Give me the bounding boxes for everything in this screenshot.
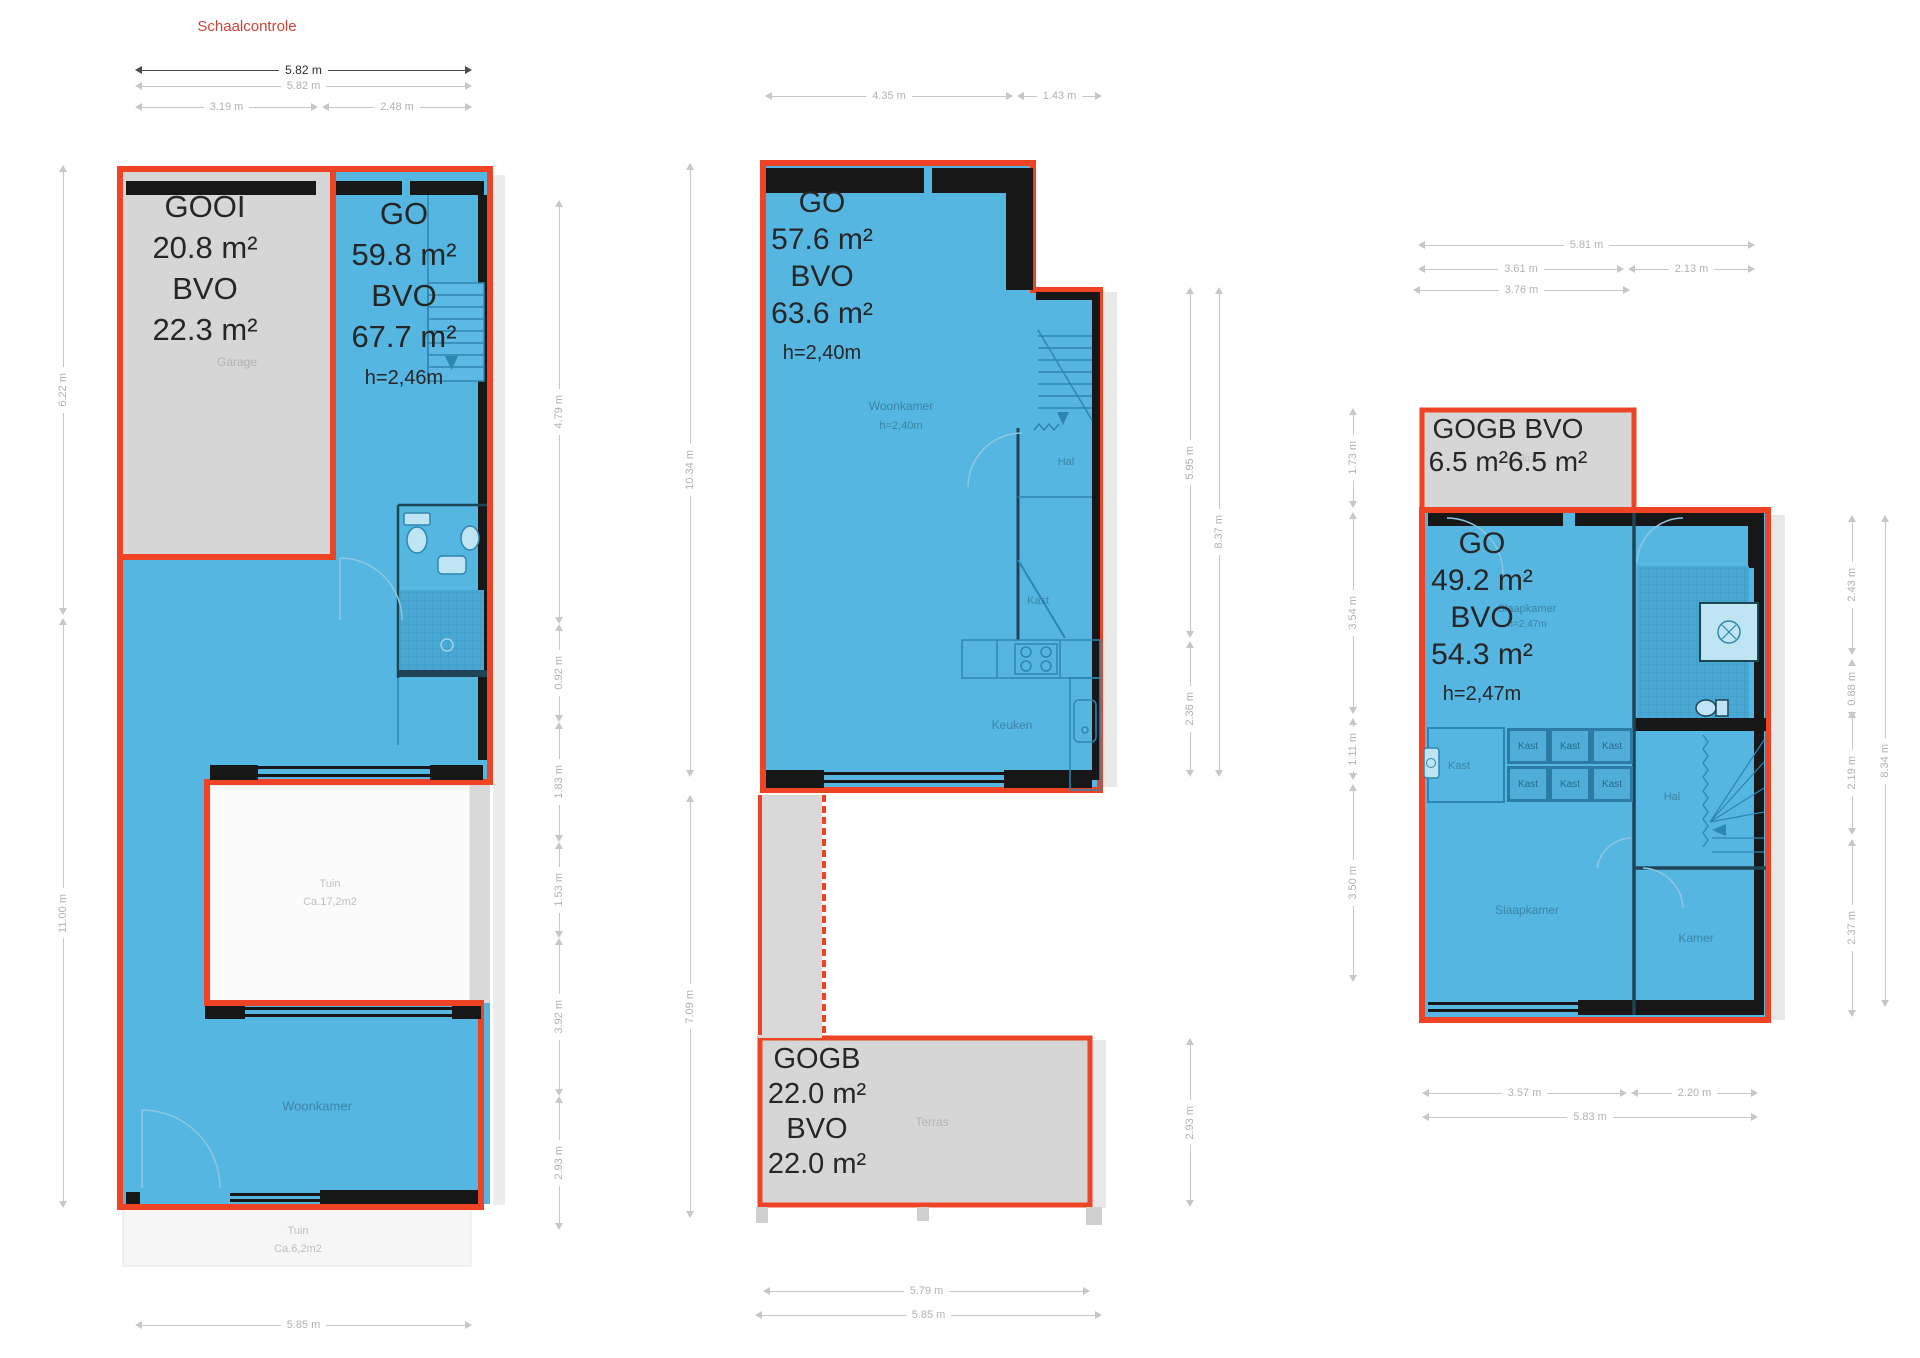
plan3-dim-left-3: 1.11 m [1346,718,1360,780]
room-label-hal3: Hal [1664,791,1681,803]
plan3-dim-bottom-right: 2.20 m [1631,1086,1758,1100]
dim-line [142,1325,281,1326]
kast-cell: Kast [1549,728,1591,764]
dim-line [1353,415,1354,435]
dim-line [559,913,560,931]
dim-label: 2.93 m [553,1140,565,1186]
plan3-dim-right-outer: 8.34 m [1878,515,1892,1007]
dim-line [762,1315,906,1316]
dim-label: 5.82 m [281,80,327,92]
room-label-garage: Garage [217,355,257,369]
plan3-gogb-label: GOGB BVO 6.5 m²6.5 m² [1429,412,1588,478]
dim-line [326,86,465,87]
room-label-kast-large: Kast [1448,760,1470,772]
room-label-kamer: Kamer [1678,931,1713,945]
dim-line [1353,906,1354,975]
dim-label: 11.00 m [57,888,69,939]
plan1-dim-top-right: 2.48 m [322,100,472,114]
plan2-dim-right-inner-1: 5.95 m [1183,287,1197,638]
dim-label: 1.83 m [553,759,565,805]
dim-line [328,70,465,71]
plan1-dim-top-total-dark: 5.82 m [135,63,472,77]
gogb-value: 6.5 m² [1429,446,1508,477]
dim-line [1635,269,1669,270]
plan1-dim-bottom: 5.85 m [135,1318,472,1332]
label-line: BVO [351,275,456,316]
dim-line [1544,290,1623,291]
dim-line [1219,294,1220,509]
dim-label: 5.85 m [906,1309,952,1321]
dim-line [559,207,560,389]
dim-label: 2.43 m [1846,562,1858,608]
label-line: GO [771,184,873,221]
dim-label: 3.57 m [1502,1087,1548,1099]
dim-label: 2.13 m [1669,263,1715,275]
label-line: BVO [152,268,257,309]
dim-line [1420,290,1499,291]
plan2-dim-bottom-1: 5.79 m [763,1284,1090,1298]
dim-label: 5.82 m [279,63,328,77]
label-line: BVO [1431,599,1533,636]
kast-cell: Kast [1591,766,1633,802]
dim-line [1717,1093,1751,1094]
room-label-kast2: Kast [1027,595,1049,607]
dim-line [1885,522,1886,738]
dim-line [559,435,560,617]
label-height: h=2,46m [351,363,456,393]
floorplan-page: Schaalcontrole 5.82 m 5.82 m 3.19 m 2.48… [0,0,1920,1358]
dim-label: 5.85 m [281,1319,327,1331]
dim-line [1429,1117,1567,1118]
dim-label: 2.20 m [1672,1087,1718,1099]
dim-line [559,1103,560,1140]
plan3-dim-top-partial: 3.76 m [1413,283,1630,297]
dim-line [559,631,560,650]
dim-line [1082,96,1095,97]
dim-line [1852,951,1853,1010]
plan3-dim-top-left: 3.61 m [1418,262,1624,276]
plan2-dim-bottom-2: 5.85 m [755,1308,1102,1322]
dim-label: 3.19 m [204,101,250,113]
dim-label: 3.50 m [1347,860,1359,906]
label-line: 20.8 m² [152,227,257,268]
dim-label: 3.76 m [1499,284,1545,296]
dim-line [142,107,204,108]
room-label-tuin-lower: Tuin Ca.6,2m2 [274,1222,322,1258]
dim-line [1613,1117,1751,1118]
kast-cell: Kast [1591,728,1633,764]
plan1-go-label: GO 59.8 m² BVO 67.7 m² h=2,46m [351,193,456,393]
label-line: 22.0 m² [768,1147,866,1182]
dim-label: 7.09 m [684,984,696,1030]
plan3-go-label: GO 49.2 m² BVO 54.3 m² h=2,47m [1431,525,1533,709]
dim-line [1852,718,1853,750]
dim-label: 1.53 m [553,867,565,913]
plan1-dim-top-left: 3.19 m [135,100,318,114]
room-label-woonkamer: Woonkamer [282,1099,352,1114]
dim-line [949,1291,1083,1292]
dim-line [559,696,560,715]
dim-line [559,805,560,835]
plan2-dim-left-1: 10.34 m [683,163,697,777]
plan2-outer-shadow [1103,292,1117,787]
dim-label: 3.61 m [1498,263,1544,275]
dim-line [559,1186,560,1223]
dim-line [1190,732,1191,770]
dim-line [1547,1093,1620,1094]
plan3-dim-right-inner-4: 2.37 m [1845,839,1859,1017]
plan1-gooi-label: GOOI 20.8 m² BVO 22.3 m² [152,186,257,350]
dim-line [142,70,279,71]
dim-line [1190,294,1191,440]
dim-line [1219,555,1220,770]
dim-line [63,172,64,367]
plan3-dim-bottom-left: 3.57 m [1422,1086,1627,1100]
plan2-dim-terras: 2.93 m [1183,1038,1197,1207]
dim-label: 5.79 m [904,1285,950,1297]
label-line: 22.0 m² [768,1077,866,1112]
label-line: h=2,40m [869,416,933,436]
plan3-dim-right-inner-2: 0.88 m [1845,659,1859,707]
dim-label: 2.36 m [1184,686,1196,732]
label-line: 6.5 m²6.5 m² [1429,445,1588,478]
dim-line [559,849,560,867]
label-line: 63.6 m² [771,295,873,332]
dim-line [63,938,64,1201]
plan3-dim-bottom-total: 5.83 m [1422,1110,1758,1124]
label-line: GOOI [152,186,257,227]
dim-label: 5.83 m [1567,1111,1613,1123]
dim-label: 0.88 m [1846,666,1858,712]
dim-label: 1.73 m [1347,435,1359,481]
dim-line [690,1029,691,1211]
plan1-dim-top-total: 5.82 m [135,79,472,93]
dim-line [559,945,560,994]
dim-line [1638,1093,1672,1094]
plan3-dim-right-inner-1: 2.43 m [1845,515,1859,655]
plan1-dim-left-1: 6.22 m [56,165,70,615]
dim-line [951,1315,1095,1316]
dim-line [559,729,560,759]
dim-line [1353,481,1354,501]
label-line: 54.3 m² [1431,636,1533,673]
plan3-shapes [1422,410,1785,1020]
dim-line [1353,519,1354,590]
dim-line [1852,796,1853,828]
toilet-tank-icon [404,513,430,525]
dim-label: 3.92 m [553,994,565,1040]
label-line: Woonkamer [869,396,933,416]
room-label-terras: Terras [915,1115,948,1129]
label-line: 59.8 m² [351,234,456,275]
plan1-dim-right-3: 1.83 m [552,722,566,842]
dim-label: 8.34 m [1879,738,1891,784]
dim-line [690,496,691,770]
dim-line [1353,791,1354,860]
plan1-dim-right-4: 1.53 m [552,842,566,938]
dim-label: 3.54 m [1347,590,1359,636]
plan1-dim-right-2: 0.92 m [552,624,566,722]
dim-line [326,1325,465,1326]
plan1-dim-left-2: 11.00 m [56,618,70,1208]
dim-line [1852,608,1853,648]
label-height: h=2,40m [771,338,873,368]
plan3-dim-right-inner-3: 2.19 m [1845,711,1859,835]
dim-label: 2.19 m [1846,750,1858,796]
label-line: Ca.17,2m2 [303,893,357,911]
dim-line [1024,96,1037,97]
plan1-dim-right-6: 2.93 m [552,1096,566,1230]
dim-label: 4.35 m [866,90,912,102]
dim-line [1544,269,1617,270]
room-label-slaapkamer: Slaapkamer [1495,903,1559,917]
plan2-go-label: GO 57.6 m² BVO 63.6 m² h=2,40m [771,184,873,368]
dim-line [1190,648,1191,686]
label-line: 67.7 m² [351,316,456,357]
label-line: GOGB BVO [1429,412,1588,445]
room-label-keuken: Keuken [992,718,1033,732]
dim-line [142,86,281,87]
dim-label: 2.48 m [374,101,420,113]
label-line: GOGB [768,1042,866,1077]
dim-line [1852,846,1853,905]
toilet-icon [1696,700,1716,716]
label-line: Tuin [274,1222,322,1240]
room-label-tuin-inner: Tuin Ca.17,2m2 [303,875,357,911]
dim-line [249,107,311,108]
kast-cell: Kast [1549,766,1591,802]
dim-line [690,802,691,984]
page-title: Schaalcontrole [197,18,296,35]
plan2-dim-right-inner-2: 2.36 m [1183,641,1197,777]
floorplan-drawing [0,0,1920,1358]
room-label-woonkamer2: Woonkamer h=2,40m [869,396,933,436]
dim-line [770,1291,904,1292]
dim-label: 6.22 m [57,367,69,413]
label-height: h=2,47m [1431,679,1533,709]
plan3-dim-left-2: 3.54 m [1346,512,1360,714]
dim-line [1353,636,1354,707]
plan3-outer-shadow [1771,515,1785,1020]
plan2-dim-left-2: 7.09 m [683,795,697,1218]
dim-line [1429,1093,1502,1094]
dim-line [63,413,64,608]
plan2-dim-top-1: 4.35 m [765,89,1013,103]
dim-line [1609,245,1748,246]
dim-label: 10.34 m [684,444,696,496]
plan3-dim-top-right: 2.13 m [1628,262,1755,276]
label-line: BVO [771,258,873,295]
dim-line [912,96,1006,97]
plan2-gogb-label: GOGB 22.0 m² BVO 22.0 m² [768,1042,866,1182]
label-line: Tuin [303,875,357,893]
plan1-tuin-side-strip [470,785,490,1003]
dim-line [329,107,374,108]
sink-icon [438,556,466,574]
plan3-dim-top-total: 5.81 m [1418,238,1755,252]
label-line: Ca.6,2m2 [274,1240,322,1258]
dim-line [772,96,866,97]
dim-label: 8.37 m [1213,509,1225,555]
dim-line [1425,245,1564,246]
dim-label: 5.95 m [1184,440,1196,486]
plan1-outer-shadow [493,175,505,1205]
label-line: GO [1431,525,1533,562]
kast-cell: Kast [1507,728,1549,764]
dim-line [1190,1045,1191,1100]
label-line: BVO [768,1112,866,1147]
dim-line [559,1040,560,1089]
dim-label: 1.43 m [1037,90,1083,102]
label-line: 49.2 m² [1431,562,1533,599]
plan2-dim-top-2: 1.43 m [1017,89,1102,103]
dim-line [1190,485,1191,631]
plan3-dim-left-4: 3.50 m [1346,784,1360,982]
label-line: 57.6 m² [771,221,873,258]
toilet-icon [407,527,427,553]
dim-line [1190,1145,1191,1200]
plan2-corridor-area [758,795,822,1038]
kast-cell: Kast [1507,766,1549,802]
dim-line [690,170,691,444]
plan1-dim-right-1: 4.79 m [552,200,566,624]
plan1-dim-right-5: 3.92 m [552,938,566,1096]
dim-label: 1.11 m [1347,727,1359,772]
dim-line [1885,784,1886,1000]
toilet-icon [461,526,479,550]
dim-line [1714,269,1748,270]
bvo-value: 6.5 m² [1508,446,1587,477]
room-label-hal2: Hal [1058,456,1075,468]
plan2-dim-right-outer: 8.37 m [1212,287,1226,777]
dim-line [63,625,64,888]
dim-label: 4.79 m [553,389,565,435]
dim-label: 0.92 m [553,650,565,696]
dim-label: 5.81 m [1564,239,1610,251]
label-line: GO [351,193,456,234]
plan3-dim-left-1: 1.73 m [1346,408,1360,508]
label-line: 22.3 m² [152,309,257,350]
dim-label: 2.93 m [1184,1100,1196,1146]
dim-line [1852,522,1853,562]
dim-line [1425,269,1498,270]
dim-label: 2.37 m [1846,905,1858,951]
plan2-terras-posts [756,1207,1102,1225]
dim-line [420,107,465,108]
